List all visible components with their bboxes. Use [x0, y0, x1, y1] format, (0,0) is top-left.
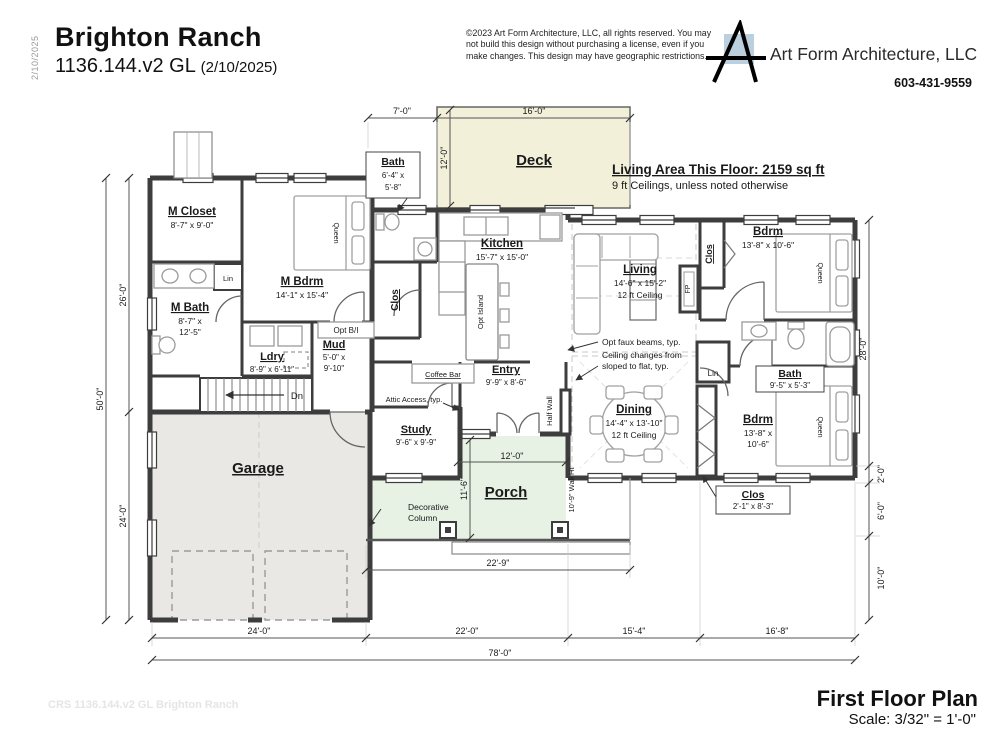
room-dims-mud-2: 9'-10"	[324, 364, 345, 373]
dim-right-b: 6'-0"	[876, 502, 886, 520]
kitchen-island	[466, 264, 509, 360]
label-opt-builtin: Opt B/I	[334, 326, 359, 335]
room-ceiling-dining: 12 ft Ceiling	[612, 430, 657, 440]
room-label-kitchen: Kitchen	[481, 238, 523, 250]
sheet-watermark: CRS 1136.144.v2 GL Brighton Ranch	[48, 699, 239, 711]
room-label-m-bath: M Bath	[171, 302, 209, 314]
label-half-wall: Half Wall	[545, 396, 554, 426]
dim-bottom-1: 24'-0"	[248, 626, 271, 636]
sheet-scale: Scale: 3/32" = 1'-0"	[849, 711, 976, 728]
master-bed	[294, 196, 370, 270]
room-dims-study: 9'-6" x 9'-9"	[396, 438, 436, 447]
closet-strip	[697, 386, 716, 476]
dim-left-upper: 26'-0"	[118, 284, 128, 307]
room-dims-entry: 9'-9" x 8'-6"	[486, 378, 526, 387]
bay-window	[174, 132, 212, 178]
dim-right-c: 10'-0"	[876, 567, 886, 590]
dim-bottom-total: 78'-0"	[489, 648, 512, 658]
room-dims-bdrm-br-1: 13'-8" x	[744, 428, 773, 438]
master-bath-toilet	[152, 336, 175, 354]
room-dims-m-closet: 8'-7" x 9'-0"	[171, 220, 214, 230]
room-label-clos-br: Clos	[742, 489, 765, 501]
room-dims-clos-br: 2'-1" x 8'-3"	[733, 502, 773, 511]
dim-bottom-2: 22'-0"	[456, 626, 479, 636]
garage-area	[152, 412, 370, 620]
label-decorative-column-2: Column	[408, 513, 438, 523]
hall-bath-fixtures	[376, 214, 436, 260]
room-label-mud: Mud	[323, 339, 346, 351]
room-label-dining: Dining	[616, 404, 652, 416]
ceiling-note-text: 9 ft Ceilings, unless noted otherwise	[612, 180, 788, 192]
room-dims-living: 14'-6" x 15'-2"	[614, 278, 666, 288]
room-dims-bath-right: 9'-5" x 5'-3"	[770, 381, 810, 390]
room-label-bdrm-br: Bdrm	[743, 414, 773, 426]
room-dims-m-bath-2: 12'-5"	[179, 327, 201, 337]
room-label-bdrm-tr: Bdrm	[753, 226, 783, 238]
living-area-text: Living Area This Floor: 2159 sq ft	[612, 162, 825, 177]
master-bath-vanity	[154, 264, 214, 288]
room-dims-bath-top-1: 6'-4" x	[382, 171, 404, 180]
room-dims-mud-1: 5'-0" x	[323, 353, 345, 362]
room-ceiling-living: 12 ft Ceiling	[618, 290, 663, 300]
half-wall	[561, 390, 570, 434]
room-label-porch: Porch	[485, 484, 528, 501]
room-dims-dining: 14'-4" x 13'-10"	[605, 418, 662, 428]
room-label-entry: Entry	[492, 364, 521, 376]
room-label-deck: Deck	[516, 152, 553, 169]
room-label-clos-tr: Clos	[704, 244, 714, 264]
label-lin-right: Lin	[708, 369, 719, 378]
room-dims-m-bath-1: 8'-7" x	[178, 316, 202, 326]
sheet-title: First Floor Plan	[817, 686, 978, 712]
room-label-m-closet: M Closet	[168, 206, 216, 218]
label-attic-access: Attic Access, typ.	[386, 395, 443, 404]
room-label-garage: Garage	[232, 460, 284, 477]
dim-porch-total: 22'-9"	[487, 558, 510, 568]
room-label-m-bdrm: M Bdrm	[281, 276, 324, 288]
label-fireplace: FP	[685, 284, 692, 293]
label-faux-beams: Opt faux beams, typ.	[602, 337, 680, 347]
label-coffee-bar: Coffee Bar	[425, 370, 461, 379]
label-down: Dn	[291, 391, 303, 402]
dim-bottom-3: 15'-4"	[623, 626, 646, 636]
sheet: 2/10/2025 Brighton Ranch 1136.144.v2 GL …	[0, 0, 998, 746]
label-opt-island: Opt Island	[476, 295, 485, 329]
room-label-living: Living	[623, 264, 657, 276]
dim-deck-depth: 12'-0"	[439, 147, 449, 170]
dim-porch-depth: 11'-6"	[459, 478, 469, 500]
room-dims-m-bdrm: 14'-1" x 15'-4"	[276, 290, 328, 300]
room-dims-kitchen: 15'-7" x 15'-0"	[476, 252, 528, 262]
floor-plan-drawing: M Closet 8'-7" x 9'-0" M Bdrm 14'-1" x 1…	[0, 0, 998, 746]
room-dims-ldry: 8'-9" x 6'-11"	[250, 365, 294, 374]
room-dims-bdrm-br-2: 10'-6"	[747, 439, 769, 449]
room-dims-bath-top-2: 5'-8"	[385, 183, 401, 192]
dim-deck-width: 16'-0"	[523, 106, 546, 116]
room-label-clos-kitchen: Clos	[390, 289, 401, 311]
room-label-bath-top: Bath	[381, 156, 404, 168]
label-lin-master: Lin	[223, 274, 233, 283]
room-label-ldry: Ldry	[260, 351, 285, 363]
right-bath-fixtures	[742, 322, 854, 366]
label-queen-master: Queen	[332, 222, 339, 243]
dim-right-upper: 28'-0"	[858, 338, 868, 361]
label-wall-height: 10'-9" Wall Ht	[567, 467, 576, 513]
label-queen-br: Queen	[816, 416, 823, 437]
label-ceiling-changes-2: sloped to flat, typ.	[602, 361, 669, 371]
dim-porch-width: 12'-0"	[501, 451, 524, 461]
bedroom-br-bed	[776, 386, 852, 466]
room-label-bath-right: Bath	[778, 368, 801, 380]
living-area-note: Living Area This Floor: 2159 sq ft 9 ft …	[612, 162, 825, 192]
kitchen-counters	[439, 213, 562, 315]
dim-bottom-4: 16'-8"	[766, 626, 789, 636]
label-decorative-column-1: Decorative	[408, 502, 449, 512]
label-ceiling-changes-1: Ceiling changes from	[602, 350, 682, 360]
dim-left-lower: 24'-0"	[118, 505, 128, 528]
room-label-study: Study	[401, 424, 432, 436]
dim-left-total: 50'-0"	[95, 388, 105, 411]
dim-right-a: 2'-0"	[876, 465, 886, 483]
label-queen-tr: Queen	[816, 262, 823, 283]
dim-top-offset: 7'-0"	[393, 106, 411, 116]
room-dims-bdrm-tr: 13'-8" x 10'-6"	[742, 240, 794, 250]
